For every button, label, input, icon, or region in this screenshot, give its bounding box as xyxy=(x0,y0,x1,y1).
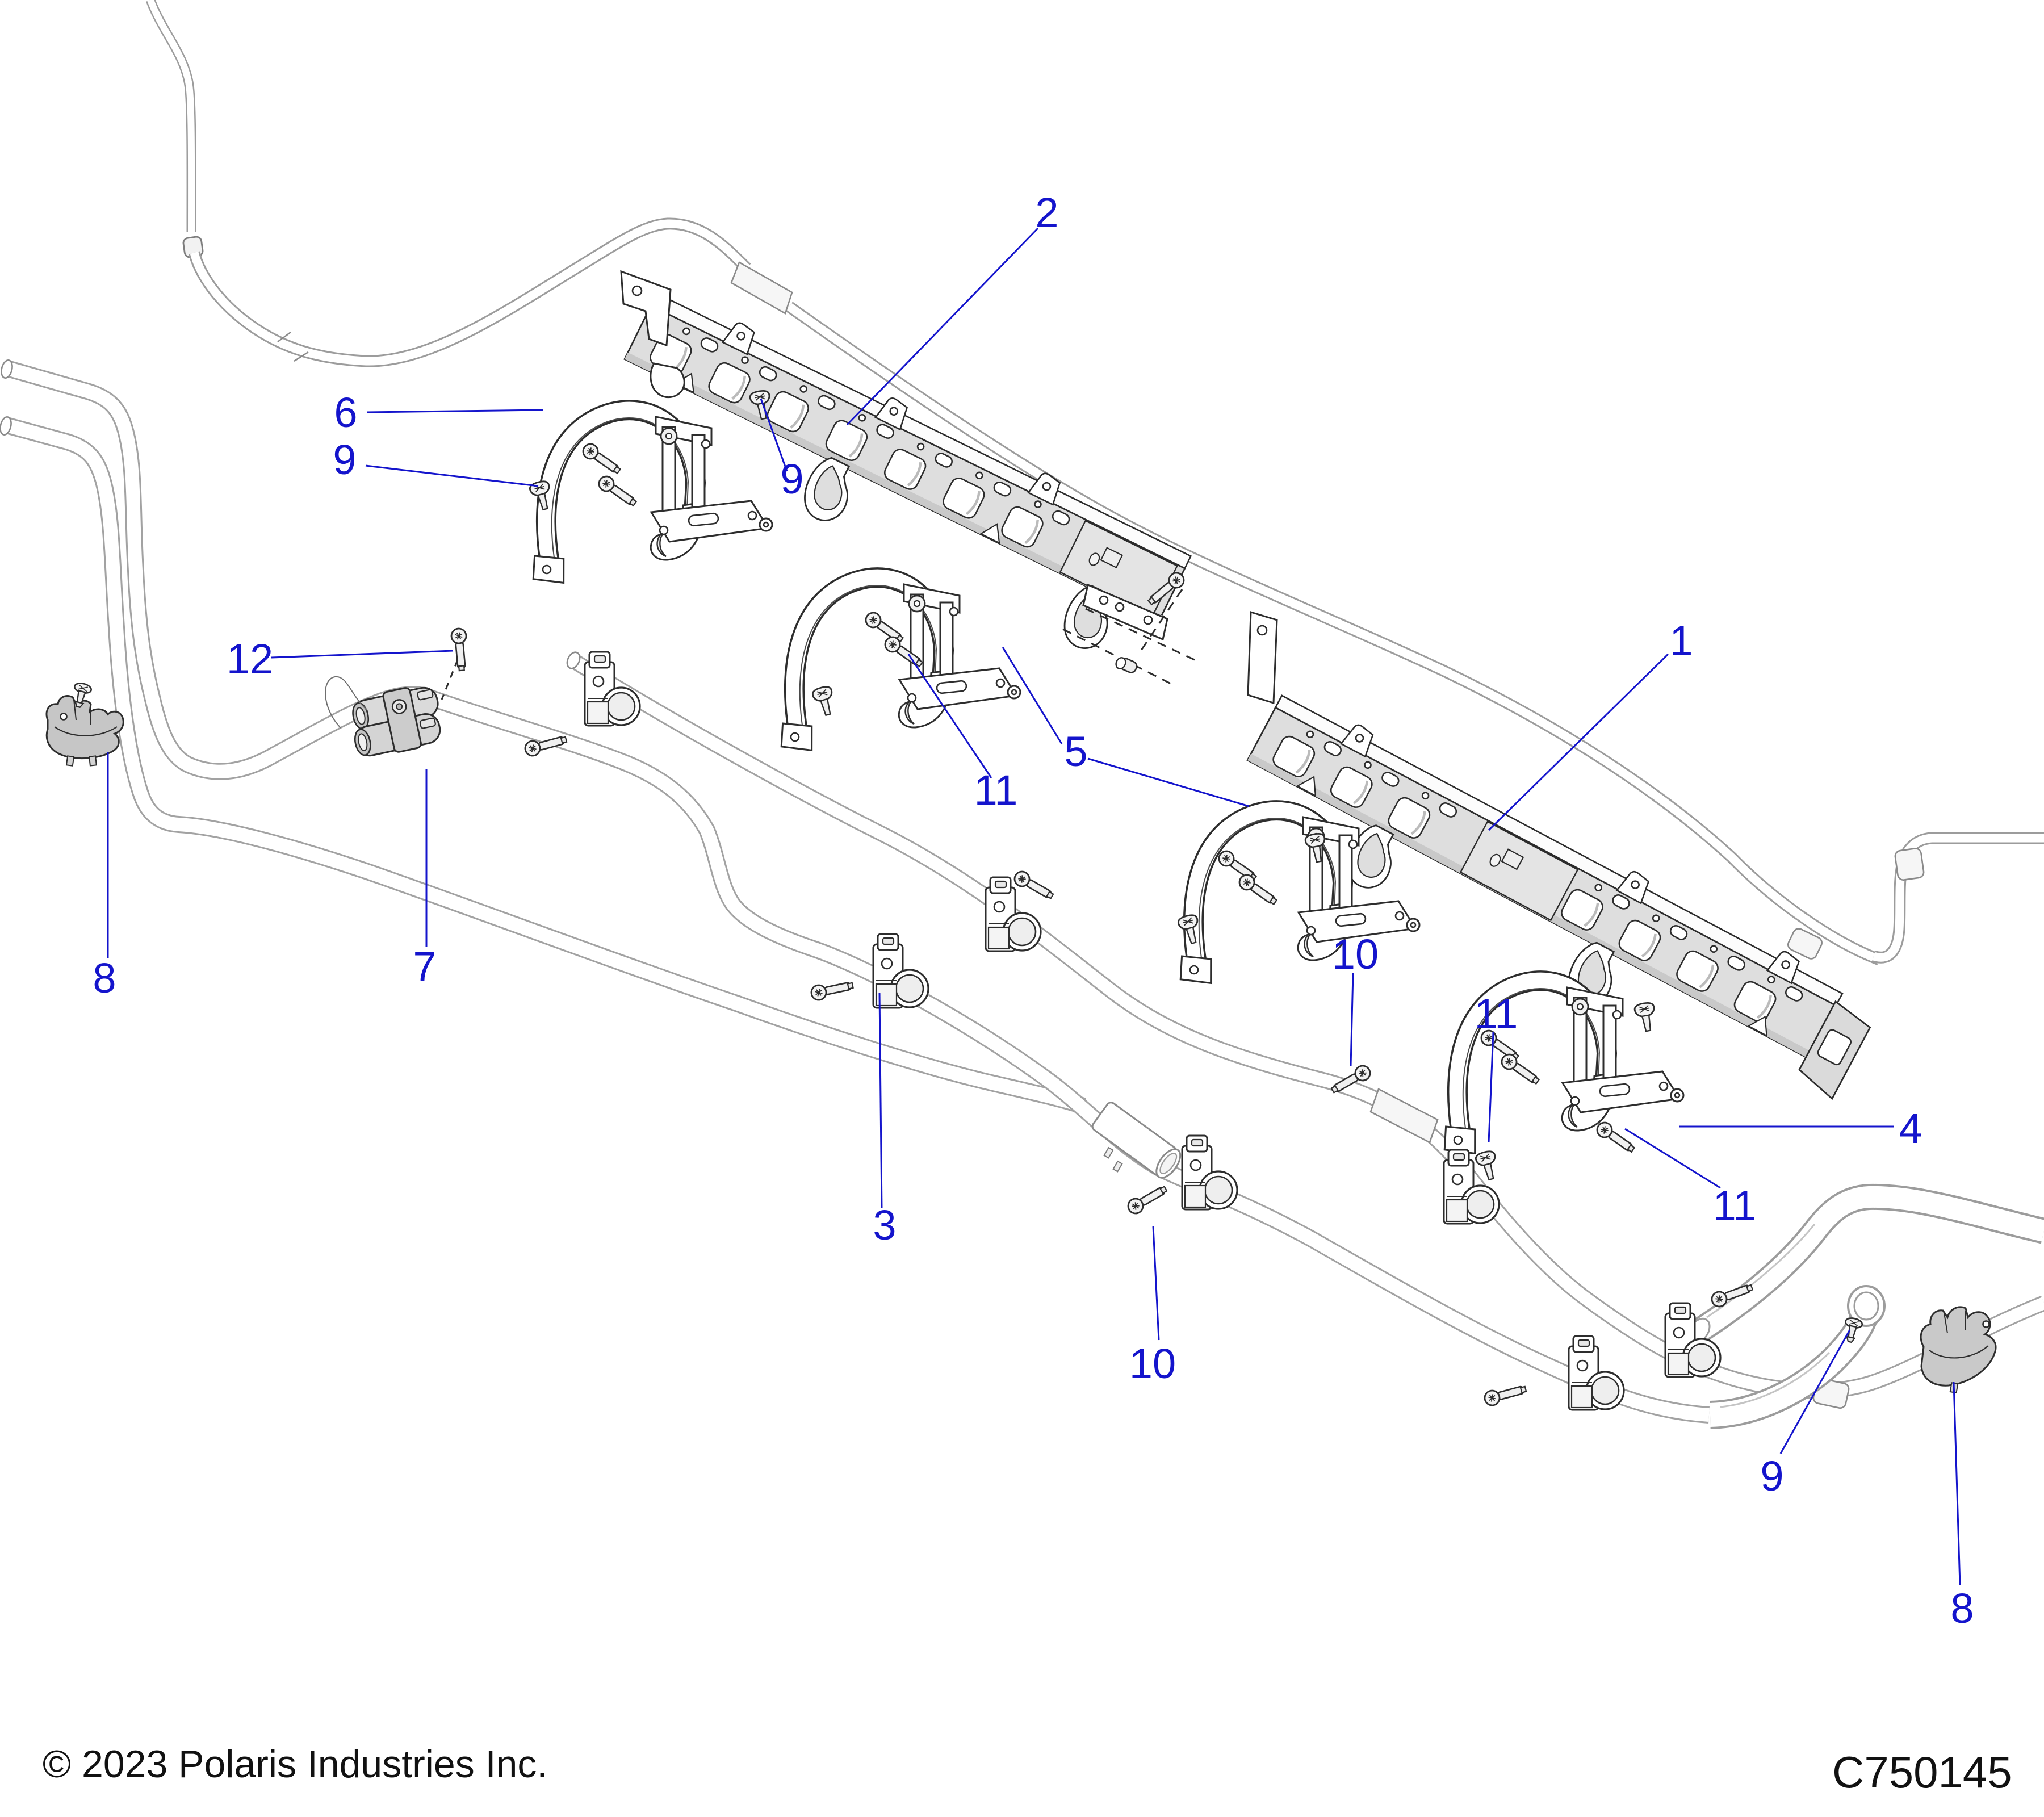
svg-text:6: 6 xyxy=(334,389,357,436)
svg-text:© 2023 Polaris Industries Inc.: © 2023 Polaris Industries Inc. xyxy=(43,1743,547,1786)
svg-text:11: 11 xyxy=(974,767,1018,814)
svg-text:3: 3 xyxy=(873,1201,896,1249)
svg-text:10: 10 xyxy=(1129,1340,1176,1387)
svg-text:5: 5 xyxy=(1064,728,1087,775)
svg-text:8: 8 xyxy=(93,954,116,1002)
svg-text:C750145: C750145 xyxy=(1832,1747,2012,1797)
svg-text:12: 12 xyxy=(227,635,273,683)
svg-text:4: 4 xyxy=(1899,1105,1922,1152)
svg-text:9: 9 xyxy=(1760,1452,1783,1500)
svg-text:8: 8 xyxy=(1950,1585,1974,1632)
svg-text:9: 9 xyxy=(780,455,803,503)
svg-text:10: 10 xyxy=(1332,931,1379,978)
svg-text:2: 2 xyxy=(1035,189,1058,236)
svg-text:9: 9 xyxy=(333,436,356,483)
svg-text:11: 11 xyxy=(1713,1182,1757,1229)
svg-text:1: 1 xyxy=(1669,617,1693,664)
svg-text:7: 7 xyxy=(413,943,436,990)
svg-text:11: 11 xyxy=(1475,990,1518,1037)
